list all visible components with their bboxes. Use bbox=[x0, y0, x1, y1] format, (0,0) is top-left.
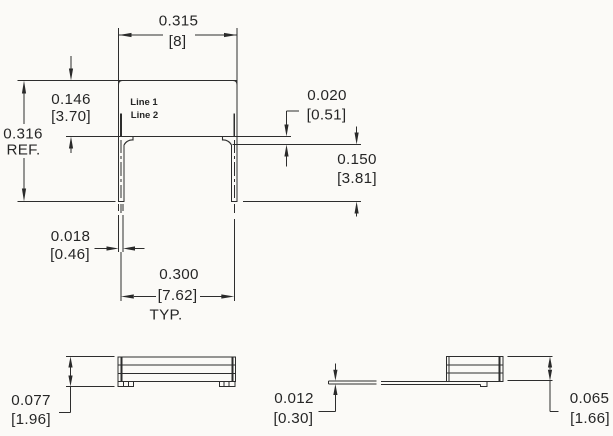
svg-text:0.020: 0.020 bbox=[307, 87, 347, 104]
svg-text:TYP.: TYP. bbox=[150, 307, 183, 324]
svg-text:0.316: 0.316 bbox=[3, 126, 43, 143]
svg-text:0.065: 0.065 bbox=[570, 390, 610, 407]
svg-text:0.150: 0.150 bbox=[337, 151, 377, 168]
svg-text:[3.81]: [3.81] bbox=[337, 170, 377, 187]
svg-text:[3.70]: [3.70] bbox=[51, 108, 91, 125]
svg-text:[0.51]: [0.51] bbox=[307, 107, 347, 124]
svg-text:[0.46]: [0.46] bbox=[50, 246, 90, 263]
svg-text:[1.66]: [1.66] bbox=[570, 410, 610, 427]
svg-text:0.012: 0.012 bbox=[274, 390, 314, 407]
svg-text:[0.30]: [0.30] bbox=[273, 410, 313, 427]
svg-text:Line 2: Line 2 bbox=[131, 110, 158, 121]
svg-text:[1.96]: [1.96] bbox=[11, 411, 51, 428]
svg-text:0.315: 0.315 bbox=[159, 13, 199, 30]
svg-text:Line 1: Line 1 bbox=[130, 97, 158, 108]
svg-text:0.077: 0.077 bbox=[11, 392, 51, 409]
svg-text:REF.: REF. bbox=[6, 142, 40, 159]
svg-text:0.018: 0.018 bbox=[51, 228, 91, 245]
svg-text:[7.62]: [7.62] bbox=[158, 287, 198, 304]
svg-text:0.300: 0.300 bbox=[159, 266, 199, 283]
svg-text:0.146: 0.146 bbox=[51, 91, 91, 108]
svg-text:[8]: [8] bbox=[169, 33, 187, 50]
